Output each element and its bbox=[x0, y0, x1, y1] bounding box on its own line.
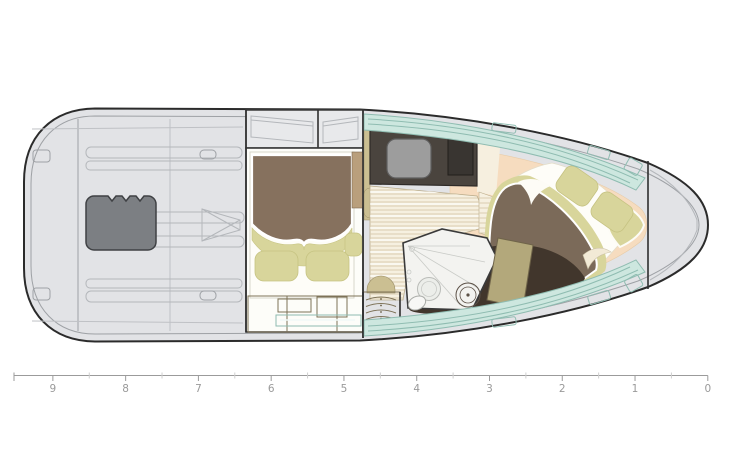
ruler-label: 5 bbox=[341, 383, 348, 395]
ruler-label: 1 bbox=[632, 383, 639, 395]
boat-floor-plan-canvas: 9876543210 bbox=[0, 0, 731, 450]
ruler-label: 2 bbox=[559, 383, 566, 395]
side-locker bbox=[352, 152, 363, 208]
galley-stove bbox=[448, 139, 473, 175]
cream-trim bbox=[477, 140, 500, 196]
galley-sink bbox=[387, 139, 431, 178]
berth-cushion bbox=[306, 251, 349, 281]
ruler-label: 4 bbox=[413, 383, 420, 395]
berth-cushion bbox=[255, 251, 298, 281]
ruler-label: 3 bbox=[486, 383, 493, 395]
ruler-label: 9 bbox=[50, 383, 57, 395]
ruler-label: 6 bbox=[268, 383, 275, 395]
scale-ruler: 9876543210 bbox=[14, 373, 711, 396]
windshield-band bbox=[246, 110, 363, 148]
mid-cabin bbox=[246, 148, 363, 332]
ruler-label: 0 bbox=[704, 383, 711, 395]
ruler-label: 8 bbox=[122, 383, 129, 395]
engine-block bbox=[86, 196, 156, 250]
mid-berth-blanket bbox=[252, 155, 352, 246]
ruler-label: 7 bbox=[195, 383, 202, 395]
shower-drain bbox=[456, 283, 480, 307]
cabin-seat bbox=[345, 233, 362, 256]
